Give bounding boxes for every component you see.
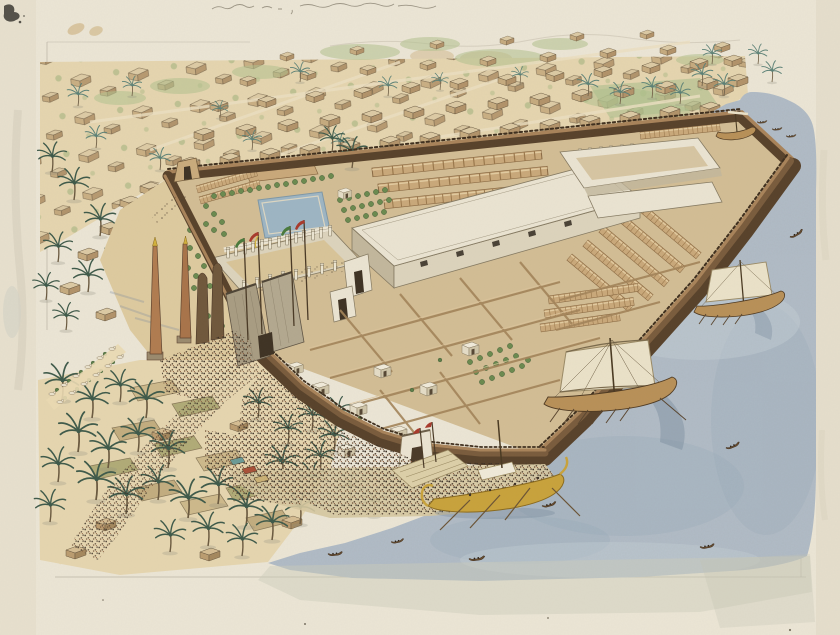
painting-canvas <box>0 0 840 635</box>
paper-grain-overlay <box>0 0 840 635</box>
watercolor-painting: Bird's-eye watercolor reconstruction of … <box>0 0 840 635</box>
